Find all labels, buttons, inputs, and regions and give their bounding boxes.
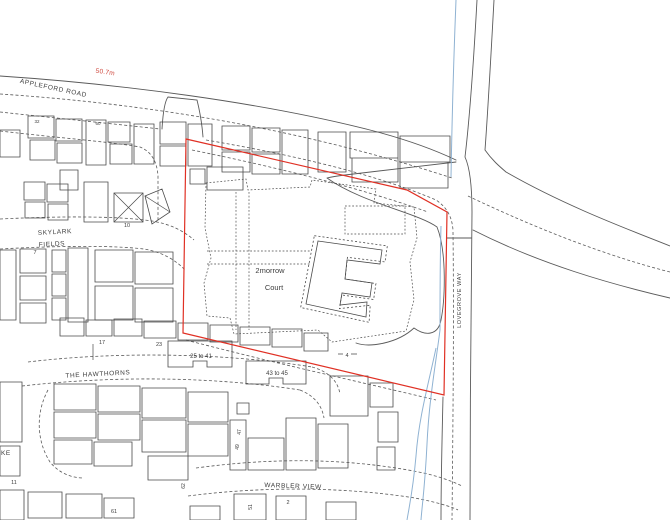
site-small-blocks — [190, 167, 243, 190]
house-number-47: 47 — [237, 429, 243, 435]
dimension-label: 50.7m — [95, 68, 115, 78]
buildings-north-outlines — [0, 116, 450, 188]
road-dashed-casings — [0, 94, 670, 520]
road-label-appleford: APPLEFORD ROAD — [19, 78, 87, 99]
site-e-building — [306, 241, 382, 317]
house-number-61: 61 — [111, 509, 117, 515]
site-plan-map: APPLEFORD ROAD 50.7m SKYLARK FIELDS 2mor… — [0, 0, 670, 520]
road-label-hawthorns: THE HAWTHORNS — [65, 369, 130, 379]
road-label-skylark-line1: SKYLARK — [38, 228, 73, 237]
site-name-line1: 2morrow — [255, 266, 285, 275]
site-boundary-red — [183, 139, 447, 395]
house-number-62: 62 — [181, 483, 187, 489]
road-label-skylark-line2: FIELDS — [39, 240, 66, 248]
house-number-49: 49 — [235, 444, 241, 450]
house-number-51: 51 — [248, 504, 254, 510]
house-number-7: 7 — [33, 250, 36, 256]
building-range-43-45: 43 to 45 — [266, 371, 288, 377]
map-canvas: APPLEFORD ROAD 50.7m SKYLARK FIELDS 2mor… — [0, 0, 670, 520]
house-number-17: 17 — [99, 340, 105, 346]
road-label-lovegrove: LOVEGROVE WAY — [457, 272, 463, 328]
house-number-2: 2 — [286, 500, 289, 506]
building-range-25-41: 25 to 41 — [190, 354, 212, 360]
site-dashed-plan — [204, 179, 417, 342]
house-number-32: 32 — [34, 119, 40, 124]
site-name-line2: Court — [265, 283, 284, 292]
house-number-10: 10 — [124, 223, 130, 229]
buildings-west-outlines — [0, 170, 173, 323]
plot-tick-marks — [93, 344, 357, 360]
road-label-partial-left-edge: KE — [1, 450, 11, 457]
stream — [407, 0, 456, 520]
house-number-11: 11 — [11, 480, 17, 486]
house-number-23: 23 — [156, 342, 162, 348]
house-number-60: 60 — [95, 121, 101, 126]
buildings-south-outlines — [0, 318, 398, 520]
house-number-4: 4 — [345, 353, 348, 359]
